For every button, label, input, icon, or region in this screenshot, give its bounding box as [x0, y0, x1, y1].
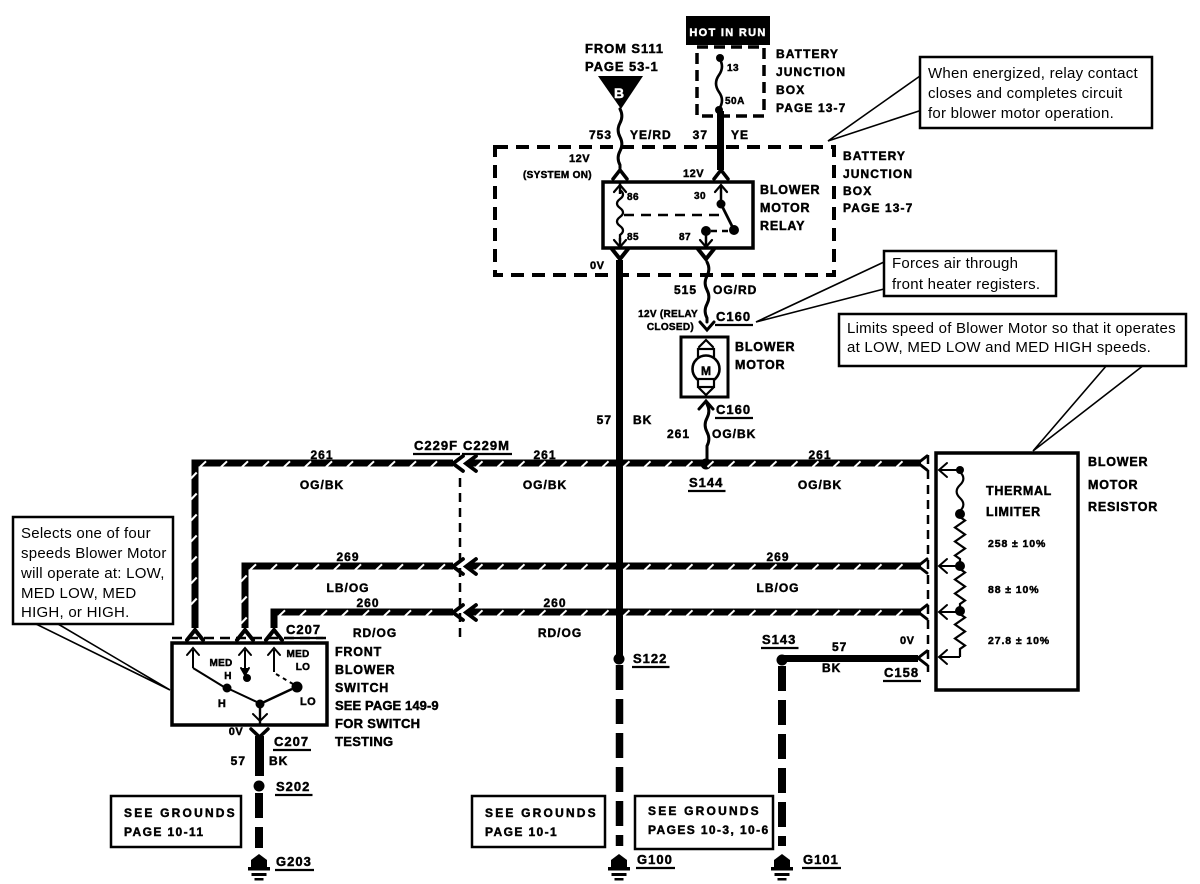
svg-text:OG/RD: OG/RD [713, 283, 757, 297]
svg-text:261: 261 [808, 448, 831, 462]
svg-text:LB/OG: LB/OG [327, 581, 370, 595]
svg-text:BK: BK [633, 413, 652, 427]
svg-text:H: H [224, 671, 232, 682]
svg-text:will operate at: LOW,: will operate at: LOW, [20, 565, 165, 582]
svg-text:PAGES 10-3, 10-6: PAGES 10-3, 10-6 [648, 823, 770, 837]
svg-text:SEE PAGE 149-9: SEE PAGE 149-9 [335, 698, 439, 713]
svg-text:OG/BK: OG/BK [523, 478, 567, 492]
svg-text:0V: 0V [900, 635, 915, 647]
svg-text:SWITCH: SWITCH [335, 681, 389, 695]
svg-text:13: 13 [727, 63, 739, 74]
svg-text:FOR SWITCH: FOR SWITCH [335, 716, 420, 731]
svg-text:85: 85 [627, 232, 639, 243]
svg-text:30: 30 [694, 191, 706, 202]
svg-text:OG/BK: OG/BK [798, 478, 842, 492]
svg-text:RESISTOR: RESISTOR [1088, 500, 1158, 514]
svg-text:TESTING: TESTING [335, 734, 393, 749]
svg-text:753: 753 [589, 128, 612, 142]
svg-text:PAGE 53-1: PAGE 53-1 [585, 59, 659, 74]
svg-text:JUNCTION: JUNCTION [776, 65, 846, 79]
svg-text:MED: MED [209, 658, 232, 669]
svg-text:YE/RD: YE/RD [630, 128, 672, 142]
svg-text:RD/OG: RD/OG [353, 626, 397, 640]
svg-text:SEE GROUNDS: SEE GROUNDS [124, 806, 237, 820]
svg-text:JUNCTION: JUNCTION [843, 167, 913, 181]
svg-text:FRONT: FRONT [335, 645, 382, 659]
svg-text:S144: S144 [689, 475, 723, 490]
svg-text:515: 515 [674, 283, 697, 297]
svg-text:PAGE 10-11: PAGE 10-11 [124, 825, 204, 839]
svg-text:BLOWER: BLOWER [335, 663, 395, 677]
svg-text:88 ± 10%: 88 ± 10% [988, 584, 1040, 596]
svg-text:YE: YE [731, 128, 749, 142]
svg-text:HOT IN RUN: HOT IN RUN [689, 27, 766, 39]
svg-text:261: 261 [310, 448, 333, 462]
svg-text:MOTOR: MOTOR [735, 358, 785, 372]
svg-text:SEE GROUNDS: SEE GROUNDS [485, 806, 598, 820]
svg-text:C207: C207 [274, 734, 309, 749]
svg-text:269: 269 [336, 550, 359, 564]
svg-text:269: 269 [766, 550, 789, 564]
svg-text:C207: C207 [286, 622, 321, 637]
svg-text:MOTOR: MOTOR [1088, 478, 1138, 492]
svg-text:S202: S202 [276, 779, 310, 794]
svg-text:BATTERY: BATTERY [776, 47, 839, 61]
svg-text:Limits speed of Blower Motor s: Limits speed of Blower Motor so that it … [847, 320, 1176, 337]
svg-text:12V (RELAY: 12V (RELAY [638, 309, 698, 320]
svg-text:H: H [218, 698, 226, 710]
svg-text:FROM S111: FROM S111 [585, 41, 664, 56]
svg-text:SEE GROUNDS: SEE GROUNDS [648, 804, 761, 818]
svg-text:0V: 0V [229, 726, 244, 738]
svg-text:BOX: BOX [776, 83, 805, 97]
svg-text:MED LOW, MED: MED LOW, MED [21, 585, 137, 602]
svg-text:G100: G100 [637, 852, 673, 867]
svg-text:C160: C160 [716, 402, 751, 417]
svg-text:LO: LO [296, 662, 311, 673]
svg-text:57: 57 [832, 640, 847, 654]
svg-text:speeds Blower Motor: speeds Blower Motor [21, 545, 167, 562]
svg-text:M: M [701, 364, 711, 378]
svg-text:OG/BK: OG/BK [300, 478, 344, 492]
svg-text:closes and completes circuit: closes and completes circuit [928, 85, 1123, 102]
svg-text:When energized, relay contact: When energized, relay contact [928, 65, 1138, 82]
svg-text:(SYSTEM ON): (SYSTEM ON) [523, 170, 592, 181]
svg-text:37: 37 [693, 128, 708, 142]
svg-text:BOX: BOX [843, 184, 872, 198]
svg-text:front heater registers.: front heater registers. [892, 276, 1040, 293]
svg-text:at LOW, MED LOW and MED HIGH s: at LOW, MED LOW and MED HIGH speeds. [847, 339, 1151, 356]
svg-text:THERMAL: THERMAL [986, 484, 1052, 498]
svg-text:LIMITER: LIMITER [986, 505, 1041, 519]
svg-text:PAGE 13-7: PAGE 13-7 [776, 101, 846, 115]
svg-text:MED: MED [286, 649, 309, 660]
svg-text:27.8 ± 10%: 27.8 ± 10% [988, 635, 1050, 647]
svg-text:BLOWER: BLOWER [760, 183, 820, 197]
svg-text:BK: BK [822, 661, 841, 675]
svg-text:RD/OG: RD/OG [538, 626, 582, 640]
svg-text:261: 261 [667, 427, 690, 441]
svg-text:260: 260 [543, 596, 566, 610]
svg-text:HIGH, or HIGH.: HIGH, or HIGH. [21, 604, 130, 621]
svg-text:57: 57 [231, 754, 246, 768]
svg-text:LB/OG: LB/OG [757, 581, 800, 595]
svg-text:MOTOR: MOTOR [760, 201, 810, 215]
svg-text:BLOWER: BLOWER [735, 340, 795, 354]
svg-text:261: 261 [533, 448, 556, 462]
svg-text:PAGE 13-7: PAGE 13-7 [843, 201, 913, 215]
svg-text:S122: S122 [633, 651, 667, 666]
svg-text:BLOWER: BLOWER [1088, 455, 1148, 469]
svg-text:C229M: C229M [463, 438, 510, 453]
svg-text:S143: S143 [762, 632, 796, 647]
svg-text:12V: 12V [683, 168, 704, 180]
svg-text:50A: 50A [725, 96, 745, 107]
svg-text:G203: G203 [276, 854, 312, 869]
svg-text:BK: BK [269, 754, 288, 768]
svg-text:for blower motor operation.: for blower motor operation. [928, 105, 1114, 122]
svg-text:87: 87 [679, 232, 691, 243]
svg-text:0V: 0V [590, 260, 605, 272]
svg-text:BATTERY: BATTERY [843, 149, 906, 163]
svg-text:12V: 12V [569, 153, 590, 165]
svg-text:C158: C158 [884, 665, 919, 680]
svg-text:260: 260 [356, 596, 379, 610]
svg-text:CLOSED): CLOSED) [647, 322, 694, 333]
svg-text:57: 57 [597, 413, 612, 427]
svg-text:PAGE 10-1: PAGE 10-1 [485, 825, 558, 839]
svg-text:OG/BK: OG/BK [712, 427, 756, 441]
svg-text:G101: G101 [803, 852, 839, 867]
svg-text:C160: C160 [716, 309, 751, 324]
svg-text:RELAY: RELAY [760, 219, 805, 233]
svg-text:LO: LO [300, 696, 316, 708]
svg-text:258 ± 10%: 258 ± 10% [988, 538, 1046, 550]
svg-text:Forces air through: Forces air through [892, 255, 1018, 272]
svg-text:C229F: C229F [414, 438, 458, 453]
svg-text:Selects one of four: Selects one of four [21, 525, 151, 542]
svg-text:B: B [614, 85, 624, 101]
svg-text:86: 86 [627, 192, 639, 203]
